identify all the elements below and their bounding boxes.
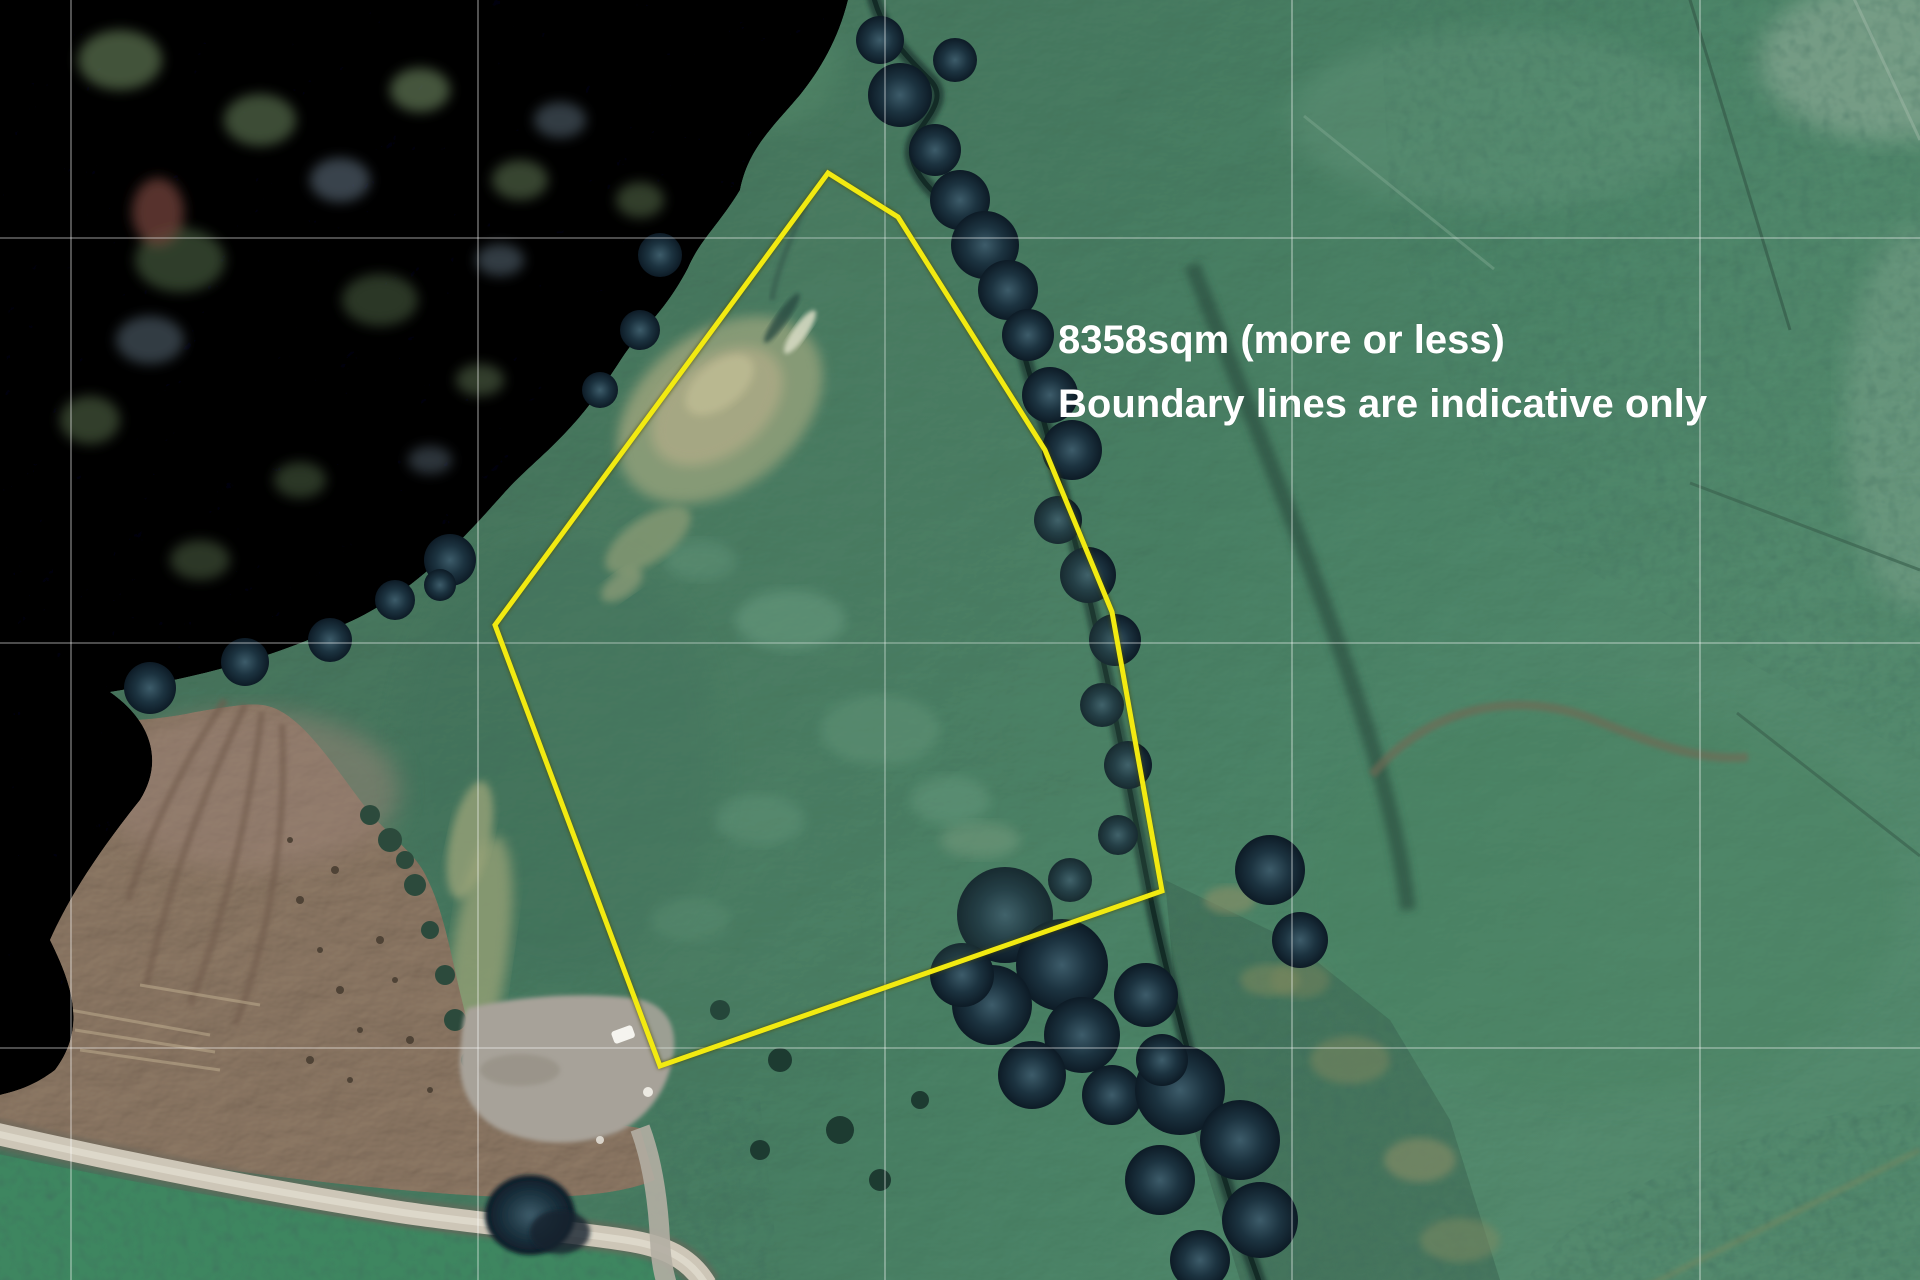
boundary-annotation: 8358sqm (more or less) Boundary lines ar…: [1058, 308, 1707, 436]
satellite-imagery: [0, 0, 1920, 1280]
annotation-area-text: 8358sqm (more or less): [1058, 308, 1707, 372]
annotation-disclaimer-text: Boundary lines are indicative only: [1058, 372, 1707, 436]
aerial-property-map: 8358sqm (more or less) Boundary lines ar…: [0, 0, 1920, 1280]
